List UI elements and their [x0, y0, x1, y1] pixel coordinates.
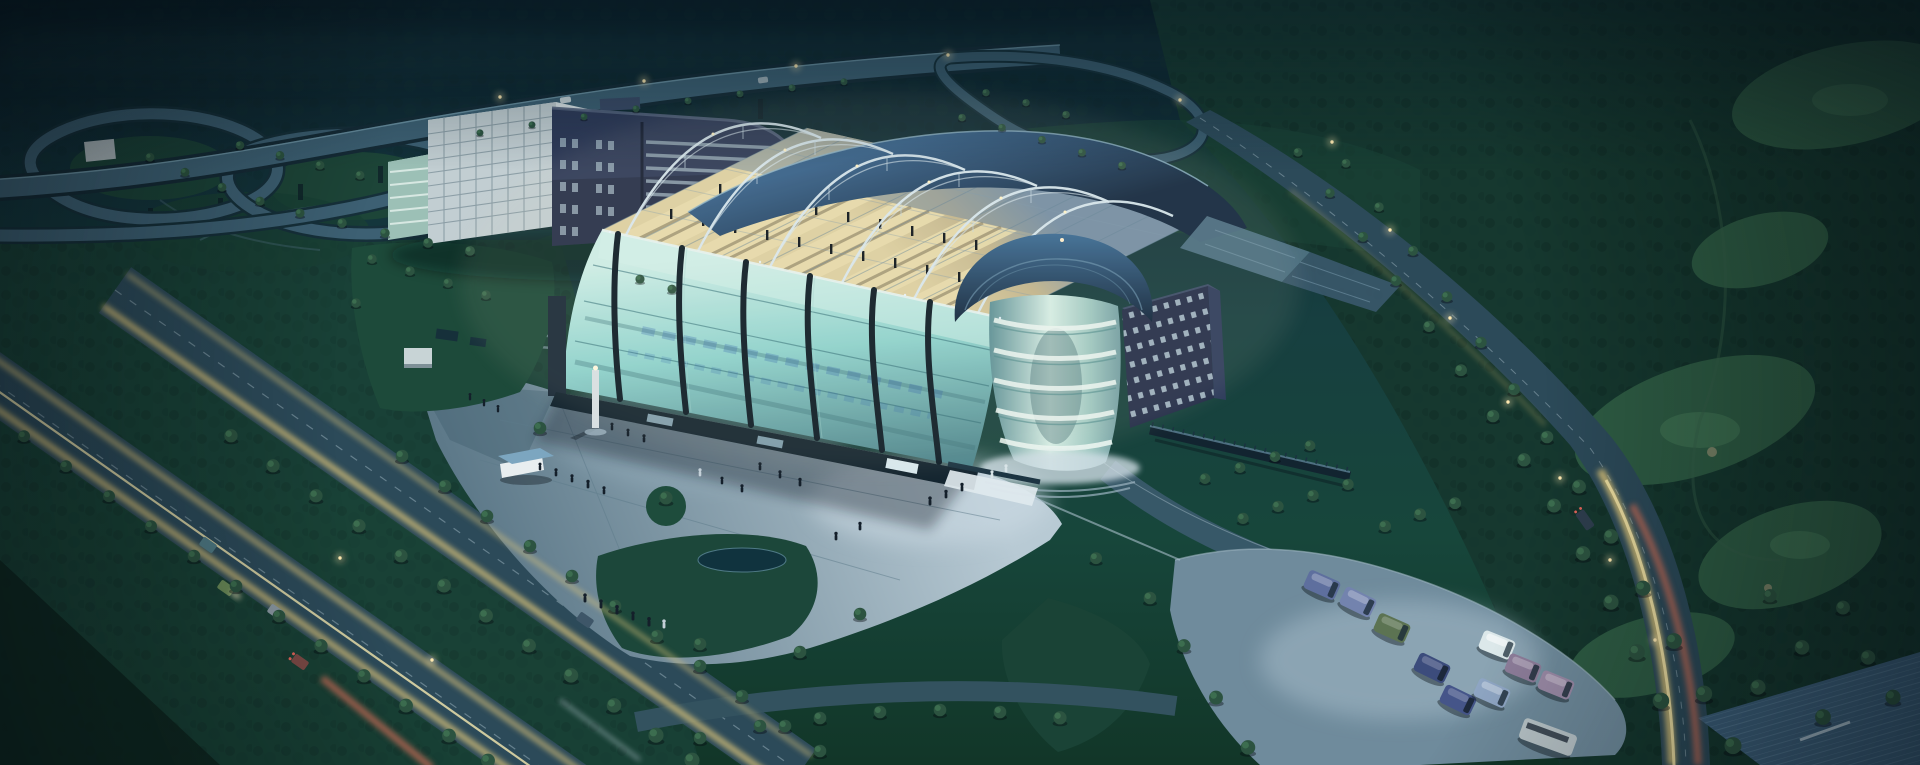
architectural-rendering: Night aerial rendering of a glass exhibi… [0, 0, 1920, 765]
rendering-canvas: Night aerial rendering of a glass exhibi… [0, 0, 1920, 765]
vignette [0, 0, 1920, 765]
